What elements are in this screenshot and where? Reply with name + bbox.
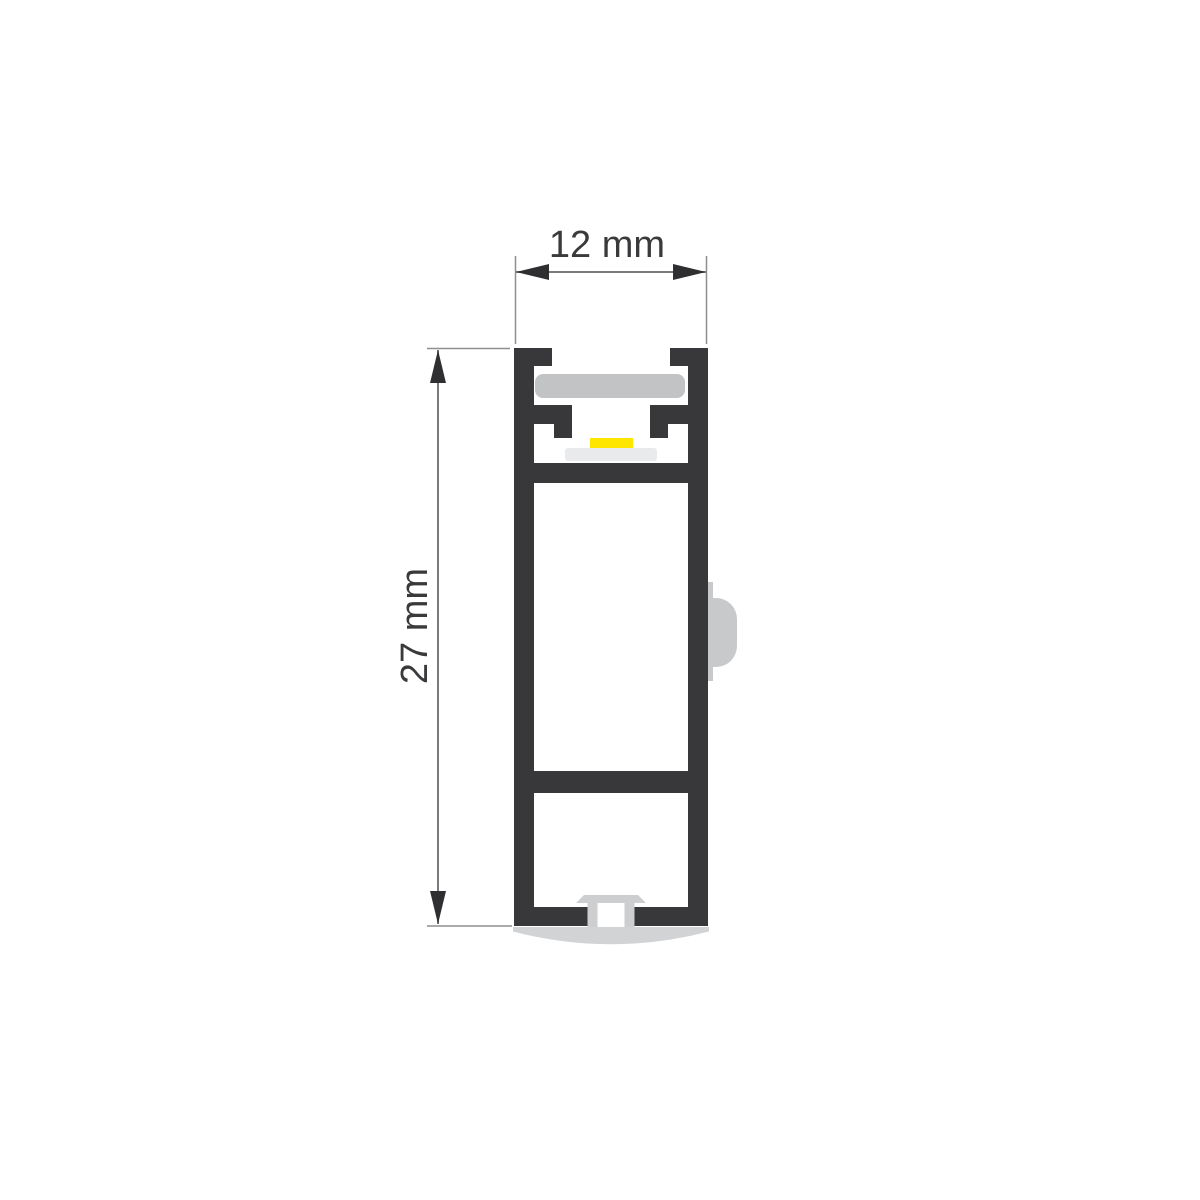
profile-bottom-flange-left — [514, 907, 588, 926]
height-dimension: 27 mm — [394, 349, 512, 927]
led-strip — [590, 438, 633, 448]
profile-bottom-flange-right — [635, 907, 709, 926]
width-dimension: 12 mm — [516, 224, 707, 344]
width-arrow-left — [516, 264, 549, 280]
diffuser-cover — [535, 374, 685, 398]
bottom-lens — [513, 927, 709, 944]
diagram-canvas: 12 mm 27 mm — [0, 0, 1200, 1200]
profile-step-left — [514, 405, 572, 424]
led-profile-cross-section-drawing: 12 mm 27 mm — [0, 0, 1200, 1200]
width-dimension-label: 12 mm — [549, 224, 665, 266]
profile-divider — [514, 771, 708, 793]
width-arrow-right — [673, 264, 706, 280]
profile-tab-left — [554, 423, 572, 438]
profile-top-flange-right — [670, 348, 708, 366]
led-base — [565, 448, 657, 461]
height-dimension-label: 27 mm — [394, 568, 436, 684]
profile-step-right — [650, 405, 708, 424]
screw-channel-tab-left — [588, 903, 598, 927]
profile-right-wall — [688, 348, 708, 926]
profile-left-wall — [514, 348, 534, 926]
profile-tab-right — [650, 423, 668, 438]
height-arrow-top — [430, 350, 446, 383]
profile-led-channel-floor — [514, 463, 708, 483]
screw-channel-tab-right — [625, 903, 635, 927]
screw-channel-cap — [576, 895, 646, 903]
mounting-clip — [708, 582, 737, 681]
mounting-clip-bump — [708, 598, 737, 667]
height-arrow-bottom — [430, 891, 446, 924]
profile-body — [514, 348, 708, 926]
profile-top-flange-left — [514, 348, 552, 366]
